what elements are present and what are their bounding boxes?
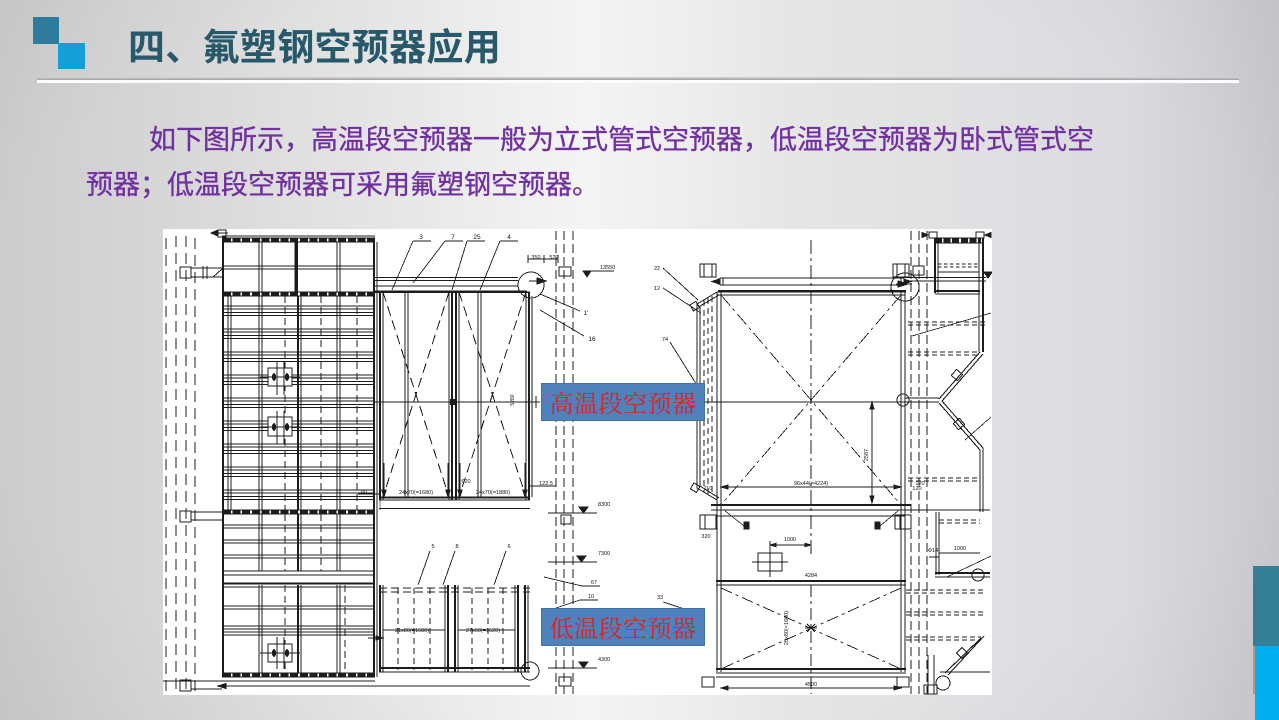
svg-text:10: 10 xyxy=(588,594,594,600)
svg-text:22: 22 xyxy=(654,266,660,272)
svg-text:1000: 1000 xyxy=(954,546,966,552)
svg-text:74: 74 xyxy=(662,337,668,343)
svg-text:1': 1' xyxy=(584,310,589,317)
svg-text:4284: 4284 xyxy=(805,573,817,579)
svg-text:8: 8 xyxy=(455,544,458,550)
svg-text:7300: 7300 xyxy=(598,551,610,557)
svg-text:67: 67 xyxy=(591,580,597,586)
svg-text:4500: 4500 xyxy=(805,682,817,688)
svg-text:13550: 13550 xyxy=(600,265,615,271)
svg-text:24x70(=1680): 24x70(=1680) xyxy=(399,490,433,496)
svg-text:5: 5 xyxy=(431,544,434,550)
svg-text:33: 33 xyxy=(657,595,663,601)
svg-text:5280: 5280 xyxy=(510,394,516,405)
svg-text:12: 12 xyxy=(654,286,660,292)
svg-text:350: 350 xyxy=(531,255,540,261)
svg-text:520: 520 xyxy=(549,255,558,261)
svg-text:1000: 1000 xyxy=(784,537,796,543)
svg-text:620: 620 xyxy=(461,479,470,485)
svg-text:4: 4 xyxy=(507,234,511,241)
svg-text:27x60(=1620): 27x60(=1620) xyxy=(466,628,500,634)
svg-text:8300: 8300 xyxy=(598,502,610,508)
svg-text:3: 3 xyxy=(419,234,423,241)
svg-text:25: 25 xyxy=(473,234,481,241)
svg-text:2587: 2587 xyxy=(864,449,870,461)
svg-text:20x80(=1600): 20x80(=1600) xyxy=(784,611,790,645)
svg-text:110: 110 xyxy=(704,486,713,492)
svg-text:16: 16 xyxy=(588,336,596,343)
svg-text:120: 120 xyxy=(915,481,924,487)
svg-text:Φ14: Φ14 xyxy=(928,548,939,554)
svg-text:7: 7 xyxy=(451,234,455,241)
svg-text:96x44(=4224): 96x44(=4224) xyxy=(794,481,828,487)
svg-text:6: 6 xyxy=(507,544,510,550)
svg-text:24x70(=1880): 24x70(=1880) xyxy=(476,490,510,496)
svg-text:4300: 4300 xyxy=(598,657,610,663)
svg-text:60: 60 xyxy=(361,490,367,496)
svg-text:320: 320 xyxy=(701,534,710,540)
svg-text:21x80(=1680): 21x80(=1680) xyxy=(395,628,429,634)
svg-text:122.5: 122.5 xyxy=(539,481,553,487)
